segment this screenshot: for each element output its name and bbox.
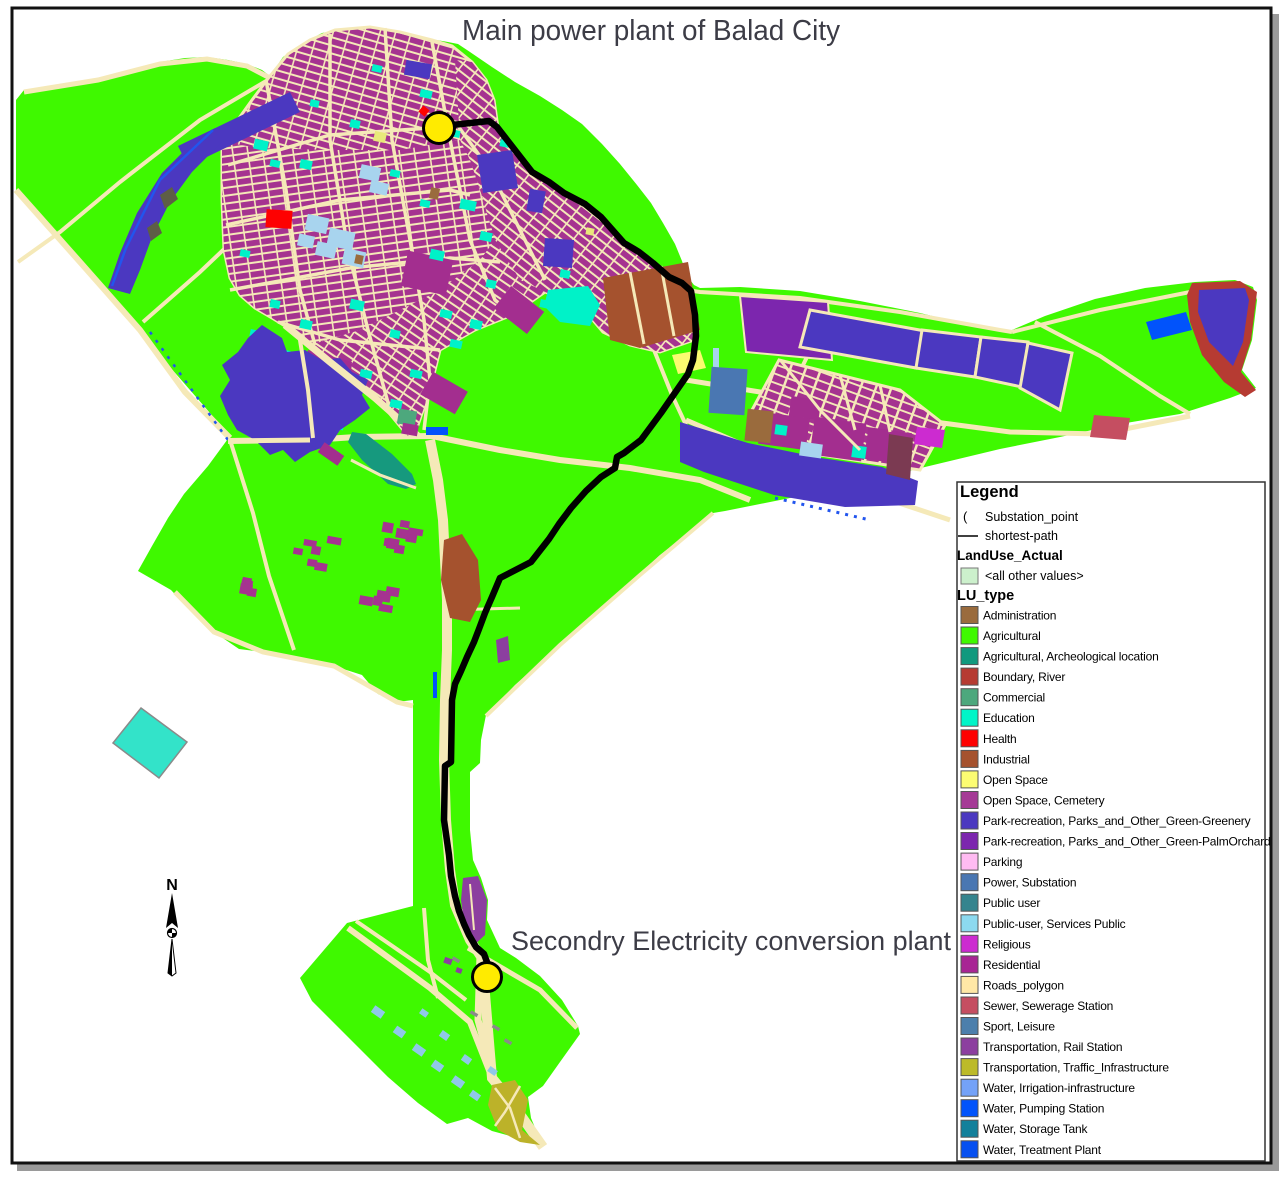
svg-text:Religious: Religious [983,937,1031,951]
svg-text:Transportation, Rail Station: Transportation, Rail Station [983,1040,1122,1054]
svg-text:shortest-path: shortest-path [985,529,1058,543]
svg-text:Main power plant of Balad City: Main power plant of Balad City [462,15,840,47]
svg-text:Legend: Legend [960,483,1019,501]
svg-text:Substation_point: Substation_point [985,510,1079,524]
svg-text:Administration: Administration [983,609,1056,623]
svg-text:Agricultural: Agricultural [983,629,1041,643]
svg-text:Water, Pumping Station: Water, Pumping Station [983,1102,1104,1116]
svg-text:Commercial: Commercial [983,691,1045,705]
svg-text:Sewer, Sewerage Station: Sewer, Sewerage Station [983,999,1113,1013]
svg-text:Open Space, Cemetery: Open Space, Cemetery [983,794,1105,808]
svg-text:Sport, Leisure: Sport, Leisure [983,1020,1055,1034]
svg-text:Park-recreation, Parks_and_Oth: Park-recreation, Parks_and_Other_Green-G… [983,814,1251,828]
svg-text:N: N [166,877,178,894]
svg-text:Education: Education [983,711,1035,725]
svg-text:Open Space: Open Space [983,773,1048,787]
svg-text:Industrial: Industrial [983,752,1030,766]
svg-text:<all other values>: <all other values> [985,569,1084,583]
svg-text:Water, Irrigation-infrastructu: Water, Irrigation-infrastructure [983,1081,1135,1095]
svg-text:Parking: Parking [983,855,1022,869]
svg-text:Water, Treatment Plant: Water, Treatment Plant [983,1143,1102,1157]
svg-text:Boundary, River: Boundary, River [983,670,1065,684]
svg-text:Roads_polygon: Roads_polygon [983,978,1064,992]
svg-text:LandUse_Actual: LandUse_Actual [957,548,1063,563]
svg-text:Health: Health [983,732,1017,746]
svg-text:Residential: Residential [983,958,1040,972]
svg-text:Power, Substation: Power, Substation [983,876,1076,890]
svg-text:Public-user, Services Public: Public-user, Services Public [983,917,1126,931]
svg-text:Secondry Electricity conversio: Secondry Electricity conversion plant [511,926,951,956]
svg-text:Public user: Public user [983,896,1040,910]
svg-text:(: ( [963,509,968,524]
svg-text:Transportation, Traffic_Infras: Transportation, Traffic_Infrastructure [983,1061,1169,1075]
svg-text:Agricultural, Archeological lo: Agricultural, Archeological location [983,650,1159,664]
svg-text:Water, Storage Tank: Water, Storage Tank [983,1122,1088,1136]
svg-text:Park-recreation, Parks_and_Oth: Park-recreation, Parks_and_Other_Green-P… [983,835,1270,849]
svg-text:LU_type: LU_type [957,588,1014,604]
